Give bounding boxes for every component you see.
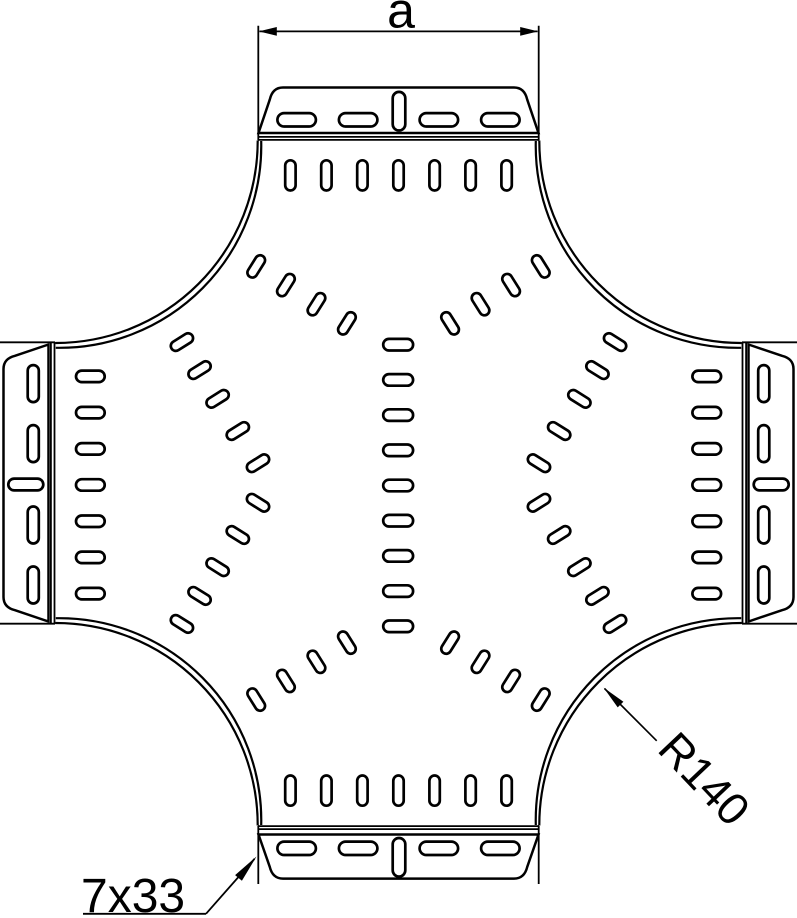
svg-text:R140: R140 (649, 722, 760, 835)
svg-text:7x33: 7x33 (81, 870, 185, 918)
svg-text:a: a (387, 0, 415, 39)
